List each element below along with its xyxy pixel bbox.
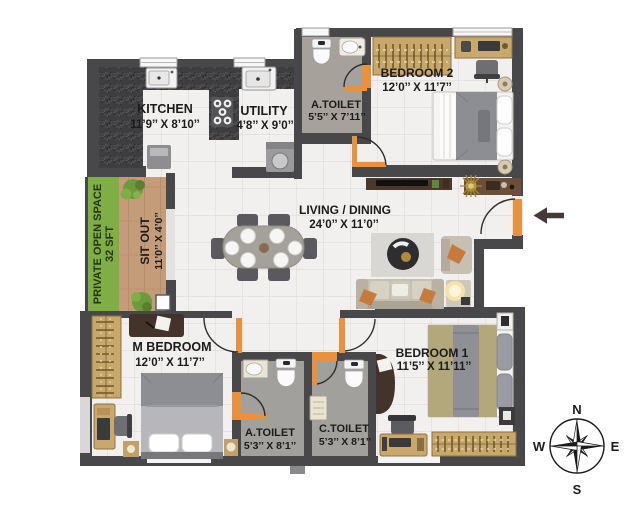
svg-text:BEDROOM 1: BEDROOM 1 — [396, 346, 469, 360]
svg-text:11’9’’ X 8’10’’: 11’9’’ X 8’10’’ — [130, 119, 199, 131]
svg-text:LIVING / DINING: LIVING / DINING — [299, 203, 391, 217]
svg-text:24’0’’ X 11’0’’: 24’0’’ X 11’0’’ — [309, 219, 378, 231]
svg-text:S: S — [573, 482, 582, 497]
svg-text:11’5’’ X 11’11’’: 11’5’’ X 11’11’’ — [397, 361, 472, 373]
svg-text:5’3’’ X 8’1’’: 5’3’’ X 8’1’’ — [319, 436, 371, 448]
svg-text:PRIVATE OPEN SPACE: PRIVATE OPEN SPACE — [92, 184, 104, 304]
svg-text:BEDROOM 2: BEDROOM 2 — [381, 66, 454, 80]
svg-text:32 SFT: 32 SFT — [104, 226, 116, 262]
svg-text:E: E — [611, 439, 620, 454]
svg-text:SIT OUT: SIT OUT — [138, 217, 152, 265]
svg-text:N: N — [572, 402, 581, 417]
svg-text:C.TOILET: C.TOILET — [319, 423, 369, 435]
svg-text:12’0’’ X 11’7’’: 12’0’’ X 11’7’’ — [382, 82, 451, 94]
svg-text:4’8’’ X 9’0’’: 4’8’’ X 9’0’’ — [236, 120, 293, 132]
svg-text:KITCHEN: KITCHEN — [137, 102, 193, 116]
svg-text:5’3’’ X 8’1’’: 5’3’’ X 8’1’’ — [244, 440, 296, 452]
svg-text:5’5’’ X 7’11’’: 5’5’’ X 7’11’’ — [308, 111, 366, 123]
svg-text:UTILITY: UTILITY — [240, 104, 288, 118]
svg-text:M BEDROOM: M BEDROOM — [132, 340, 211, 354]
svg-text:12’0’’ X 11’7’’: 12’0’’ X 11’7’’ — [135, 357, 204, 369]
svg-text:A.TOILET: A.TOILET — [311, 99, 361, 111]
svg-text:W: W — [533, 439, 546, 454]
svg-text:A.TOILET: A.TOILET — [245, 427, 295, 439]
svg-text:11’0’’ X 4’0’’: 11’0’’ X 4’0’’ — [153, 212, 165, 270]
